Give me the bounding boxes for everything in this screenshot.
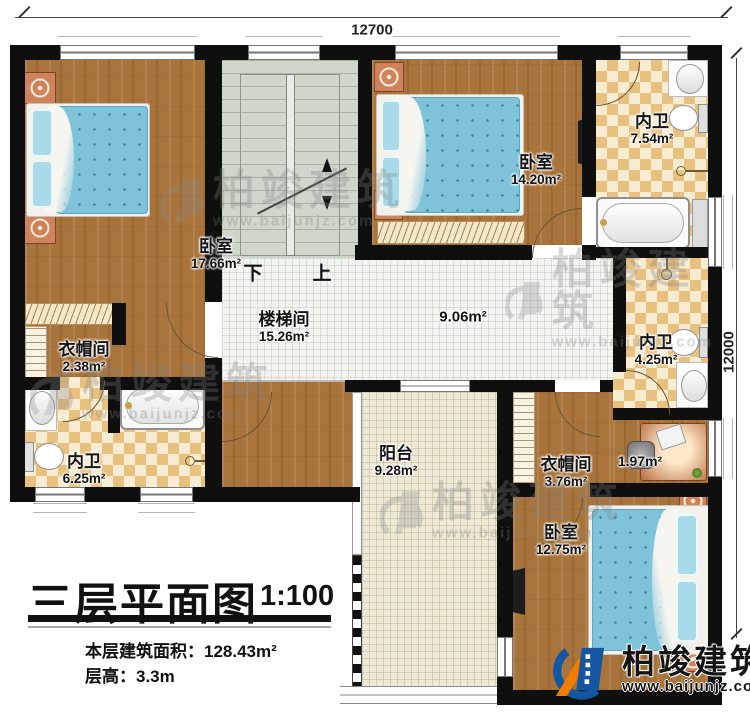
wall [10, 45, 25, 502]
dimension-right-label: 12000 [721, 331, 738, 373]
brand-url: www.baijunjz.com [622, 678, 750, 697]
window-sill [138, 503, 195, 513]
wall [25, 377, 60, 390]
shower-tray [692, 199, 708, 249]
room-name: 衣帽间 [541, 455, 592, 474]
wall [513, 483, 535, 497]
floor-area-text: 本层建筑面积：128.43m² [85, 637, 277, 662]
wall [362, 380, 400, 392]
wall [355, 245, 532, 260]
wall [108, 390, 120, 433]
plant-icon [692, 468, 702, 478]
room-area: 3.76m² [541, 474, 592, 489]
wall [358, 60, 372, 245]
bed-pillow [381, 100, 401, 152]
stair-arrow-up-icon [322, 158, 332, 172]
room-area: 4.25m² [635, 352, 678, 367]
sink-basin-icon [29, 391, 55, 425]
bed-pillow [381, 156, 401, 208]
room-area: 1.97m² [618, 454, 662, 470]
bed-pillow [676, 514, 698, 576]
brand-logo: 柏竣建筑 www.baijunjz.com [541, 641, 750, 701]
floor-boundary-line [222, 380, 345, 382]
bed-pillow [676, 580, 698, 642]
sink-basin-icon [681, 370, 707, 402]
window [60, 45, 195, 60]
window-sill [723, 195, 733, 269]
wardrobe-rack [377, 221, 525, 244]
title-underline [28, 615, 331, 622]
bathtub-inner [126, 388, 199, 424]
room-label-stair-hall: 楼梯间 15.26m² [259, 310, 310, 344]
room-area: 7.54m² [631, 131, 674, 146]
room-area: 9.28m² [375, 463, 418, 478]
bed-pillow [31, 160, 53, 208]
window [35, 487, 85, 502]
nightstand [24, 72, 56, 104]
room-label-bedroom-top-left: 卧室 17.66m² [191, 237, 241, 271]
toilet-tank [699, 327, 708, 358]
window [708, 420, 722, 477]
page-title: 三层平面图 [28, 568, 258, 632]
room-name: 卧室 [191, 237, 241, 256]
room-label-bedroom-bottom-right: 卧室 12.75m² [536, 523, 586, 557]
window [708, 197, 722, 267]
room-label-bath-top-right: 内卫 7.54m² [631, 112, 674, 146]
tub-faucet-icon [125, 402, 132, 409]
room-label-bath-bottom-left: 内卫 6.25m² [63, 452, 106, 486]
tub-faucet-icon [600, 219, 607, 226]
balcony-rail-dashed [352, 555, 362, 690]
window [395, 45, 558, 60]
brand-logo-icon [541, 641, 617, 701]
stair-down-label: 下 [243, 259, 262, 286]
wall [205, 358, 222, 487]
closet-shelf [513, 392, 535, 483]
window [140, 487, 193, 502]
room-area: 2.38m² [59, 359, 110, 374]
wall [345, 380, 362, 392]
room-area: 6.25m² [63, 471, 106, 486]
wall [112, 303, 126, 345]
title-underline-thin [28, 626, 331, 628]
room-area: 9.06m² [439, 310, 487, 327]
wall [596, 247, 708, 258]
room-name: 内卫 [635, 333, 678, 352]
room-label-bedroom-top-middle: 卧室 14.20m² [511, 153, 561, 187]
room-label-balcony: 阳台 9.28m² [375, 444, 418, 478]
shower-head-icon [661, 269, 672, 280]
room-name: 内卫 [63, 452, 106, 471]
room-name: 衣帽间 [59, 340, 110, 359]
wall [590, 483, 708, 497]
nightstand [374, 62, 404, 92]
stair-up-label: 上 [312, 259, 331, 286]
room-label-closet-right: 衣帽间 3.76m² [541, 455, 592, 489]
stair-arrow-down-icon [322, 196, 332, 210]
window-sill [33, 503, 87, 513]
wardrobe-rack [25, 303, 113, 325]
toilet-bowl-icon [34, 443, 64, 470]
bathtub [596, 197, 690, 249]
room-label-closet-left: 衣帽间 2.38m² [59, 340, 110, 374]
wall [582, 245, 596, 260]
wall [513, 380, 555, 392]
toilet-tank [698, 104, 708, 133]
room-name: 卧室 [511, 153, 561, 172]
window-sill [723, 418, 733, 479]
room-area: 17.66m² [191, 256, 241, 271]
window [248, 45, 320, 60]
room-area: 12.75m² [536, 542, 586, 557]
wall [613, 258, 626, 372]
wall [708, 45, 722, 705]
towel-bar [686, 170, 708, 172]
balcony-rail-bottom [340, 686, 513, 704]
floor-height-text: 层高：3.3m [85, 662, 175, 687]
sink-basin-icon [676, 64, 704, 94]
tv [513, 568, 525, 615]
nightstand-knob-icon [380, 68, 399, 87]
bed-pillow [31, 109, 53, 157]
closet-shelf [25, 326, 47, 378]
drawing-scale: 1:100 [260, 580, 334, 613]
brand-name: 柏竣建筑 [622, 645, 750, 678]
balcony-rail-upper [352, 392, 362, 555]
wall [582, 60, 596, 197]
towel-ring-icon [185, 456, 195, 466]
room-label-corridor: 9.06m² [439, 310, 487, 327]
room-area: 15.26m² [259, 329, 310, 344]
dimension-line-top [15, 17, 728, 18]
sliding-door [400, 380, 470, 392]
wall [600, 380, 613, 392]
room-label-desk-nook: 1.97m² [618, 454, 662, 470]
nightstand-knob-icon [31, 219, 50, 238]
room-name: 内卫 [631, 112, 674, 131]
wall [470, 380, 513, 392]
room-name: 卧室 [536, 523, 586, 542]
room-label-bath-middle-right: 内卫 4.25m² [635, 333, 678, 367]
stair-rail [286, 74, 295, 256]
floor-plan: 12700 12000 [0, 0, 750, 720]
window [497, 637, 513, 677]
toilet-tank [24, 442, 34, 472]
dimension-top-label: 12700 [351, 22, 393, 39]
room-name: 阳台 [375, 444, 418, 463]
room-area: 14.20m² [511, 172, 561, 187]
window [620, 45, 688, 60]
bathtub-inner [602, 203, 684, 243]
nightstand-knob-icon [31, 79, 50, 98]
room-name: 楼梯间 [259, 310, 310, 329]
floor-balcony [362, 392, 497, 690]
wall [100, 377, 205, 390]
towel-ring-icon [676, 166, 686, 176]
